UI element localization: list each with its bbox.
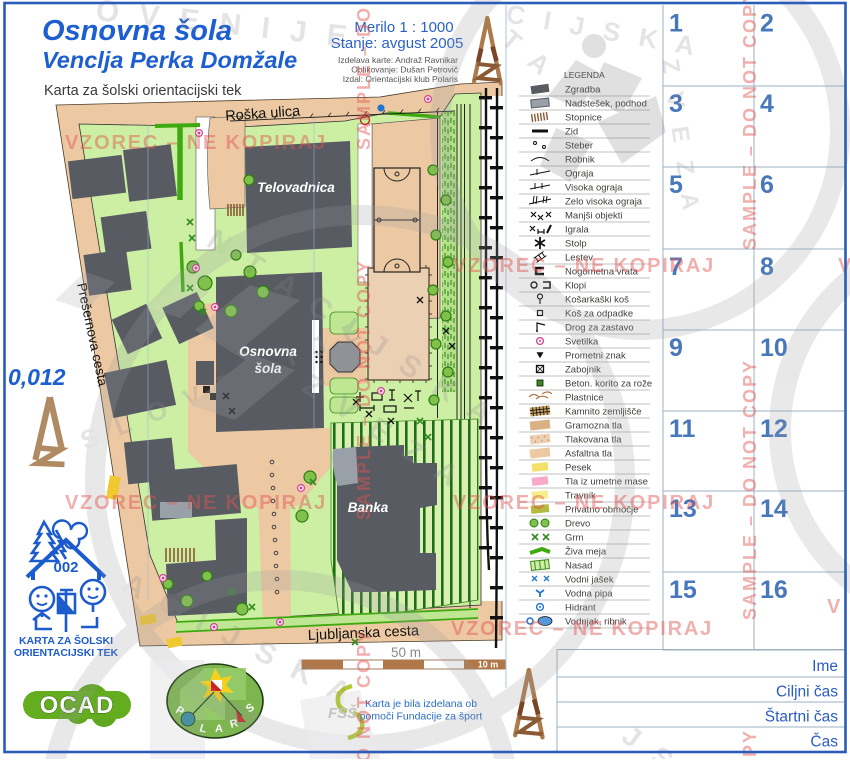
svg-text:Klopi: Klopi <box>565 281 586 292</box>
svg-text:Ime: Ime <box>812 658 838 675</box>
svg-text:Živa meja: Živa meja <box>565 547 607 558</box>
svg-text:SAMPLE – DO NOT COPY: SAMPLE – DO NOT COPY <box>354 0 374 150</box>
svg-text:Kamnito zemljišče: Kamnito zemljišče <box>565 407 642 418</box>
svg-text:10 m: 10 m <box>478 660 499 670</box>
svg-text:SAMPLE – DO NOT COPY: SAMPLE – DO NOT COPY <box>740 359 760 620</box>
svg-text:9: 9 <box>669 334 683 362</box>
svg-text:V: V <box>838 255 850 277</box>
svg-text:002: 002 <box>53 559 78 576</box>
svg-text:Asfaltna tla: Asfaltna tla <box>565 449 613 460</box>
svg-text:15: 15 <box>669 576 697 604</box>
svg-text:Štartni čas: Štartni čas <box>765 709 838 726</box>
svg-text:Stopnice: Stopnice <box>565 113 602 124</box>
svg-text:16: 16 <box>760 576 788 604</box>
svg-text:VZOREC – NE KOPIRAJ: VZOREC – NE KOPIRAJ <box>453 255 715 277</box>
svg-text:SAMPLE – DO NOT COPY: SAMPLE – DO NOT COPY <box>740 0 760 250</box>
svg-text:VZOREC – NE KOPIRAJ: VZOREC – NE KOPIRAJ <box>65 492 327 514</box>
svg-text:Zelo visoka ograja: Zelo visoka ograja <box>565 197 643 208</box>
svg-text:Plastnice: Plastnice <box>565 393 604 404</box>
svg-text:Grm: Grm <box>565 533 584 544</box>
svg-text:0,012: 0,012 <box>8 364 66 390</box>
svg-text:Drevo: Drevo <box>565 519 590 530</box>
svg-text:SAMPLE – DO NOT COPY: SAMPLE – DO NOT COPY <box>354 259 374 520</box>
svg-text:VZOREC – NE KOPIRAJ: VZOREC – NE KOPIRAJ <box>453 492 715 514</box>
svg-text:A: A <box>215 723 223 735</box>
svg-text:Tla iz umetne mase: Tla iz umetne mase <box>565 477 648 488</box>
svg-text:50 m: 50 m <box>391 645 421 660</box>
svg-text:SAMPLE – DO NOT COPY: SAMPLE – DO NOT COPY <box>740 729 760 759</box>
svg-text:Čas: Čas <box>810 734 838 751</box>
svg-text:Stolp: Stolp <box>565 239 587 250</box>
svg-text:Košarkaški koš: Košarkaški koš <box>565 295 629 306</box>
svg-text:KARTA ZA ŠOLSKI: KARTA ZA ŠOLSKI <box>19 634 113 647</box>
svg-text:Ciljni čas: Ciljni čas <box>776 684 838 701</box>
svg-text:Karta je bila izdelana ob: Karta je bila izdelana ob <box>365 698 477 710</box>
svg-text:11: 11 <box>669 415 696 443</box>
svg-text:4: 4 <box>760 90 774 118</box>
svg-text:Telovadnica: Telovadnica <box>257 180 335 195</box>
svg-text:2: 2 <box>760 10 774 38</box>
svg-text:VZOREC – NE KOPIRAJ: VZOREC – NE KOPIRAJ <box>451 618 713 640</box>
svg-text:Pesek: Pesek <box>565 463 592 474</box>
svg-text:Visoka ograja: Visoka ograja <box>565 183 623 194</box>
svg-text:Nasad: Nasad <box>565 561 592 572</box>
svg-text:Igrala: Igrala <box>565 225 589 236</box>
svg-text:V: V <box>827 596 841 618</box>
svg-text:Karta za šolski orientacijski: Karta za šolski orientacijski tek <box>44 83 242 99</box>
svg-text:VZOREC – NE KOPIRAJ: VZOREC – NE KOPIRAJ <box>65 132 327 154</box>
svg-text:6: 6 <box>760 171 774 199</box>
svg-text:SAMPLE – DO NOT COPY: SAMPLE – DO NOT COPY <box>354 629 374 759</box>
svg-text:Manjši objekti: Manjši objekti <box>565 211 623 222</box>
svg-text:Venclja Perka Domžale: Venclja Perka Domžale <box>42 47 297 73</box>
